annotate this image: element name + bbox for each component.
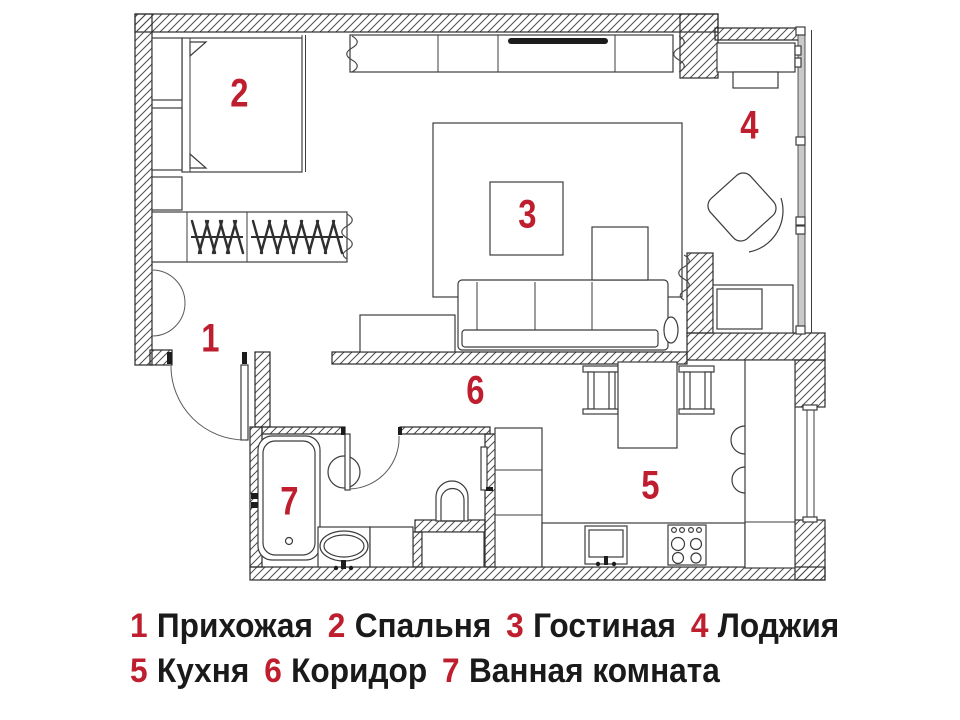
floor-plan-canvas: [0, 0, 960, 595]
bathroom-vanity-sink: [318, 527, 413, 570]
loggia-storage-bench: [713, 285, 793, 333]
room-number-bedroom: 2: [230, 72, 247, 117]
dining-chair-left: [583, 366, 618, 414]
legend-item-loggia: 4Лоджия: [691, 607, 854, 645]
wall-niche-arc: [152, 270, 185, 336]
wardrobe: [152, 212, 347, 262]
legend-item-bedroom: 2Спальня: [328, 607, 506, 645]
laundry-basket: [328, 456, 360, 488]
legend-line-2: 5Кухня6Коридор7Ванная комната: [130, 649, 902, 694]
washing-machine: [422, 532, 484, 567]
legend-item-corridor: 6Коридор: [264, 652, 442, 690]
dining-table: [618, 362, 677, 448]
floor-plan-page: 1 2 3 4 5 6 7 1Прихожая2Спальня3Гостиная…: [0, 0, 960, 720]
kitchen-cabinets-left: [495, 428, 542, 567]
room-number-hallway: 1: [201, 317, 218, 362]
tv: [508, 38, 608, 44]
loggia-armchair: [704, 169, 783, 252]
loggia-desk: [717, 43, 801, 88]
toilet: [436, 481, 468, 521]
room-number-corridor: 6: [466, 369, 483, 414]
kitchen-window: [803, 405, 817, 522]
sofa: [458, 280, 678, 350]
loggia-glazing: [796, 27, 812, 334]
loggia-stool: [733, 72, 778, 88]
bathroom-door: [345, 434, 399, 490]
legend-item-bathroom: 7Ванная комната: [442, 652, 735, 690]
tv-console: [350, 35, 673, 72]
sofa-armrest: [664, 317, 678, 343]
nightstands: [152, 38, 182, 170]
room-number-kitchen: 5: [641, 464, 658, 509]
legend-line-1: 1Прихожая2Спальня3Гостиная4Лоджия: [130, 604, 902, 649]
room-number-bathroom: 7: [280, 480, 297, 525]
stove: [668, 525, 706, 565]
dining-chair-right: [679, 366, 714, 414]
kitchen-counter: [542, 523, 745, 567]
side-table: [592, 227, 648, 280]
legend: 1Прихожая2Спальня3Гостиная4Лоджия 5Кухня…: [130, 604, 960, 694]
room-number-living: 3: [518, 193, 535, 238]
room-number-loggia: 4: [740, 104, 757, 149]
legend-item-kitchen: 5Кухня: [130, 652, 264, 690]
entry-door: [171, 365, 248, 440]
ottoman: [360, 315, 455, 352]
legend-item-living: 3Гостиная: [506, 607, 691, 645]
dresser: [152, 177, 182, 210]
legend-item-hallway: 1Прихожая: [130, 607, 328, 645]
